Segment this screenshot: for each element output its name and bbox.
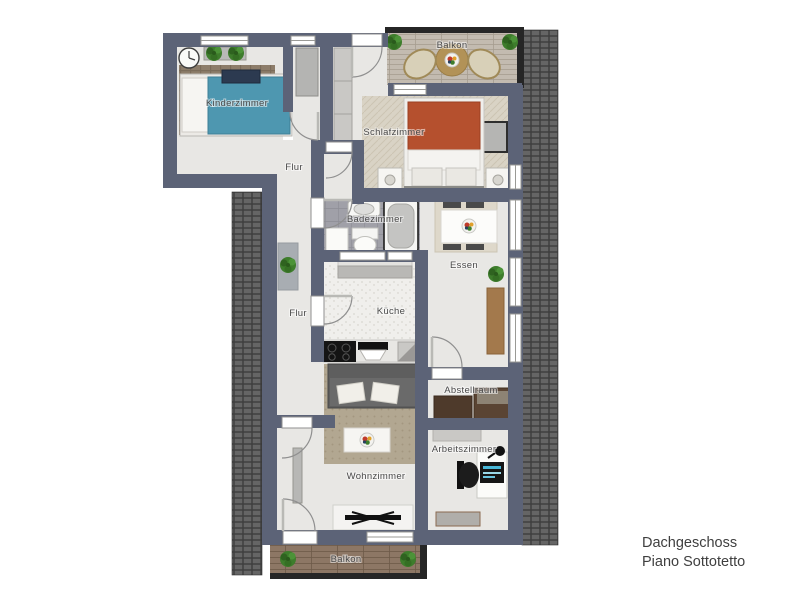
plant-icon	[228, 45, 244, 61]
window	[291, 36, 315, 45]
floor-plan-canvas: Kinderzimmer Balkon Schlafzimmer Flur Ba…	[0, 0, 800, 600]
label-wohnzimmer: Wohnzimmer	[347, 471, 406, 482]
label-abstellraum: Abstellraum	[444, 385, 497, 396]
label-essen: Essen	[450, 260, 478, 271]
roof-strip-left	[232, 192, 262, 575]
window	[367, 532, 413, 542]
bathtub	[384, 200, 418, 252]
label-flur-lower: Flur	[289, 308, 307, 319]
plant-icon	[502, 34, 518, 50]
double-bed	[404, 98, 484, 190]
doormat	[278, 243, 298, 290]
monitor	[480, 462, 504, 483]
toilet	[352, 228, 378, 254]
plant-icon	[488, 266, 504, 282]
window	[510, 314, 521, 362]
room-badezimmer	[324, 200, 420, 254]
flower-tray	[360, 433, 374, 447]
plant-icon	[280, 257, 296, 273]
balcony-door-top	[394, 85, 426, 95]
label-badezimmer: Badezimmer	[347, 214, 403, 225]
pass-through	[340, 252, 385, 260]
sofa-pillow	[337, 382, 365, 403]
plan-title-line1: Dachgeschoss	[642, 535, 737, 551]
label-balkon-top: Balkon	[437, 40, 468, 51]
label-kinderzimmer: Kinderzimmer	[206, 98, 268, 109]
schlafzimmer-closet	[334, 48, 352, 148]
plant-icon	[206, 45, 222, 61]
bed-pillow	[446, 168, 476, 186]
floor-plan-svg: Kinderzimmer Balkon Schlafzimmer Flur Ba…	[0, 0, 800, 600]
window	[201, 36, 248, 45]
sofa-pillow	[371, 382, 399, 403]
sideboard	[487, 288, 504, 354]
label-arbeitszimmer: Arbeitszimmer	[432, 444, 497, 455]
flower-tray	[445, 53, 459, 67]
pass-through	[388, 252, 412, 260]
plant-icon	[386, 34, 402, 50]
label-balkon-bottom: Balkon	[331, 554, 362, 565]
tv-lowboard	[333, 505, 413, 530]
plan-title: Dachgeschoss Piano Sottotetto	[642, 535, 745, 570]
balcony-top	[385, 27, 524, 88]
label-schlafzimmer: Schlafzimmer	[363, 127, 424, 138]
wall-clock-icon	[179, 48, 199, 68]
plant-icon	[400, 551, 416, 567]
plant-icon	[280, 551, 296, 567]
plan-title-line2: Piano Sottotetto	[642, 554, 745, 570]
window	[510, 258, 521, 306]
window	[510, 200, 521, 250]
bed-pillow	[412, 168, 442, 186]
office-shelf	[436, 512, 480, 526]
bed-pillow	[222, 70, 260, 83]
washing-machine	[326, 228, 348, 252]
window	[510, 165, 521, 189]
livingroom-wardrobe	[293, 448, 302, 503]
hall-wardrobe	[296, 48, 318, 96]
kitchen-counter	[324, 340, 415, 362]
label-flur-upper: Flur	[285, 162, 303, 173]
roof-strip-right	[522, 30, 558, 545]
flower-tray	[462, 219, 476, 233]
label-kueche: Küche	[377, 306, 405, 317]
sofa	[328, 364, 420, 408]
